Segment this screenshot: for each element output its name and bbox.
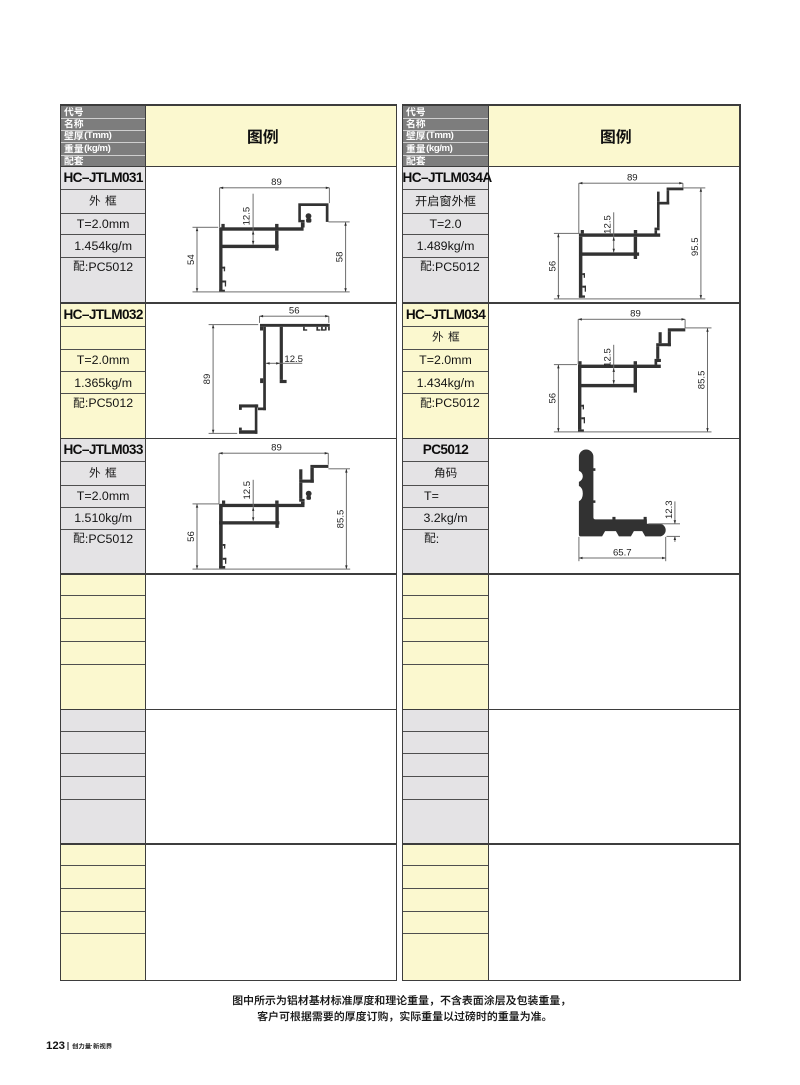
svg-text:89: 89 bbox=[202, 374, 213, 385]
svg-text:12.5: 12.5 bbox=[602, 215, 613, 234]
svg-text:89: 89 bbox=[271, 177, 282, 188]
svg-text:12.3: 12.3 bbox=[664, 500, 675, 519]
svg-text:56: 56 bbox=[289, 305, 300, 316]
svg-text:12.5: 12.5 bbox=[602, 348, 613, 367]
svg-text:85.5: 85.5 bbox=[335, 509, 346, 528]
svg-text:58: 58 bbox=[334, 251, 345, 262]
svg-text:85.5: 85.5 bbox=[696, 371, 707, 390]
svg-text:54: 54 bbox=[186, 253, 197, 264]
svg-text:56: 56 bbox=[186, 531, 197, 542]
svg-text:89: 89 bbox=[271, 442, 282, 453]
svg-text:56: 56 bbox=[547, 393, 558, 404]
svg-text:65.7: 65.7 bbox=[612, 547, 631, 558]
svg-text:12.5: 12.5 bbox=[284, 354, 303, 365]
svg-text:95.5: 95.5 bbox=[690, 237, 701, 256]
svg-text:56: 56 bbox=[547, 260, 558, 271]
svg-text:12.5: 12.5 bbox=[242, 480, 253, 499]
svg-text:89: 89 bbox=[626, 172, 637, 183]
svg-text:12.5: 12.5 bbox=[241, 206, 252, 225]
svg-text:89: 89 bbox=[630, 309, 641, 320]
